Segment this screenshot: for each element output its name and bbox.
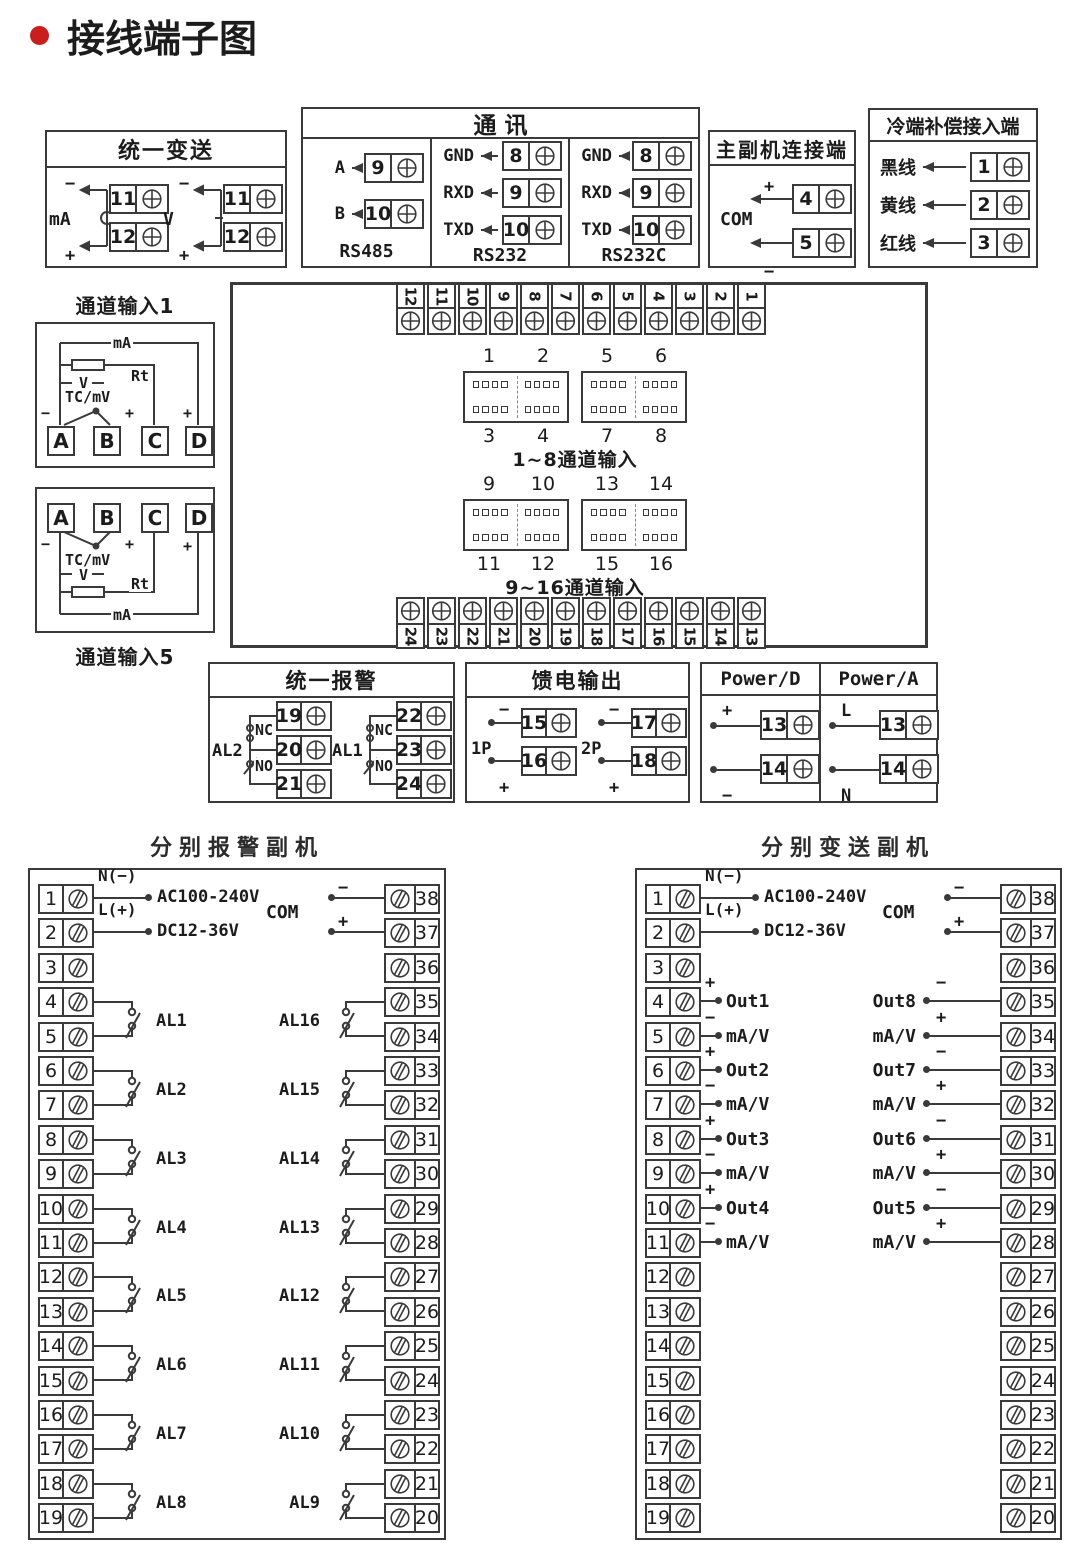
terminal: 13 (760, 710, 820, 740)
strip-number: 15 (675, 623, 704, 649)
channel-input-1-label: 通道输入1 (35, 290, 215, 319)
left-terminal-1: 1 (645, 884, 701, 914)
signal-label: GND (576, 146, 612, 166)
strip-number: 7 (551, 283, 580, 309)
strip-number-text: 21 (495, 627, 513, 646)
idc-connector (581, 499, 687, 551)
sign: − (722, 788, 732, 805)
terminal-number: 36 (414, 953, 440, 983)
pin-label: 12 (528, 553, 558, 573)
screw-icon (520, 307, 549, 335)
pin-square (591, 381, 597, 388)
comm-rows: A9B10 (303, 139, 430, 241)
pin-square (652, 534, 658, 541)
strip-cell: 13 (737, 597, 766, 649)
terminal-number: 19 (645, 1503, 671, 1533)
wire (758, 242, 792, 244)
wire (928, 1069, 1000, 1071)
pin-square (600, 381, 606, 388)
screw-slash-icon (1004, 1094, 1028, 1116)
screw-icon (1000, 1090, 1030, 1120)
power-line-label: L(+) (705, 901, 744, 919)
arrowhead-icon (750, 238, 761, 248)
arrow-wire (923, 242, 966, 244)
terminal-column: 192021 (276, 701, 332, 799)
power-line-label: N(−) (98, 867, 137, 885)
screw-cross-icon (304, 773, 328, 795)
screw-icon (671, 918, 701, 948)
screw-icon (489, 597, 518, 625)
strip-cell: 9 (489, 283, 518, 335)
screw-cross-icon (461, 310, 484, 332)
terminal: 2 (970, 190, 1030, 220)
right-terminal-32: 32 (384, 1090, 440, 1120)
screw-cross-icon (662, 145, 688, 167)
screw-icon (582, 597, 611, 625)
screw-cross-icon (424, 705, 448, 727)
screw-icon (613, 307, 642, 335)
screw-cross-icon (424, 773, 448, 795)
screw-icon (64, 1262, 94, 1292)
strip-number-text: 2 (712, 291, 730, 300)
screw-slash-icon (673, 1129, 697, 1151)
strip-cell: 3 (675, 283, 704, 335)
strip-number-text: 13 (743, 627, 761, 646)
group-label: mA (49, 210, 71, 230)
right-terminal-26: 26 (1000, 1297, 1056, 1327)
wire (835, 769, 879, 771)
strip-number-text: 4 (650, 291, 668, 300)
relay-switch-art (94, 1262, 152, 1336)
v-label: V (77, 568, 90, 583)
arrow-wire (481, 229, 498, 231)
arrow-wire (619, 229, 628, 231)
terminal: 8 (632, 141, 692, 171)
screw-cross-icon (662, 182, 688, 204)
screw-icon (907, 754, 939, 784)
screw-cross-icon (139, 226, 165, 248)
power-column-title: Power/A (821, 664, 936, 696)
sign: N (841, 788, 851, 805)
terminal-number: 20 (414, 1503, 440, 1533)
comm-row: TXD10 (576, 215, 692, 245)
pin-square (619, 534, 625, 541)
terminal-number: 19 (38, 1503, 64, 1533)
right-terminal-33: 33 (1000, 1056, 1056, 1086)
cold-junction-title: 冷端补偿接入端 (870, 110, 1036, 142)
screw-cross-icon (709, 600, 732, 622)
terminal-number: 22 (1030, 1434, 1056, 1464)
screw-icon (1000, 1434, 1030, 1464)
sign: − (705, 1147, 715, 1164)
relay-switch-art (326, 1125, 384, 1199)
signal-label: A (309, 158, 345, 178)
terminal-number: 37 (1030, 918, 1056, 948)
pin-square (671, 406, 677, 413)
right-terminal-37: 37 (384, 918, 440, 948)
strip-cell: 5 (613, 283, 642, 335)
screw-slash-icon (388, 1404, 412, 1426)
screw-icon (675, 307, 704, 335)
wiring-terminal-diagram-page: 接线端子图 统一变送 −+mA1112−+V1112 通 讯 A9B10RS48… (0, 0, 1080, 1553)
strip-cell: 17 (613, 597, 642, 649)
screw-icon (520, 597, 549, 625)
pin-square (591, 509, 597, 516)
output-label: mA/V (726, 1027, 769, 1047)
screw-icon (458, 597, 487, 625)
terminal: 19 (276, 701, 332, 731)
screw-cross-icon (1000, 156, 1026, 178)
pin-label: 1 (474, 345, 504, 365)
relay-label: AL5 (156, 1288, 187, 1305)
terminal-number: 10 (632, 215, 660, 245)
junction-dot (715, 1066, 722, 1073)
pin-square (671, 534, 677, 541)
terminal-number: 7 (38, 1090, 64, 1120)
connector-divider (635, 504, 636, 546)
screw-icon (671, 987, 701, 1017)
pin-square (492, 534, 498, 541)
sign: + (609, 780, 619, 797)
screw-icon (384, 1125, 414, 1155)
junction-dot (752, 894, 759, 901)
screw-cross-icon (662, 219, 688, 241)
screw-icon (1000, 953, 1030, 983)
screw-icon (547, 708, 577, 738)
power-rating-text: AC100-240V (764, 888, 866, 907)
terminal-number: 29 (414, 1194, 440, 1224)
terminal-number: 16 (38, 1400, 64, 1430)
alarm-relay-AL2: AL2NCNO192021 (214, 701, 332, 799)
pin-square (525, 534, 531, 541)
strip-number-text: 18 (588, 627, 606, 646)
screw-icon (907, 710, 939, 740)
comm-caption: RS232C (570, 245, 698, 266)
left-terminal-7: 7 (38, 1090, 94, 1120)
right-terminal-36: 36 (384, 953, 440, 983)
comm-caption: RS485 (303, 241, 430, 266)
terminal-number: 22 (414, 1434, 440, 1464)
pin-label: 14 (646, 473, 676, 493)
screw-slash-icon (1004, 1026, 1028, 1048)
screw-slash-icon (388, 991, 412, 1013)
output-label: mA/V (850, 1027, 916, 1047)
terminal-number: 20 (1030, 1503, 1056, 1533)
left-terminal-3: 3 (38, 953, 94, 983)
terminal-number: 38 (414, 884, 440, 914)
junction-dot (829, 766, 836, 773)
terminal-number: 37 (414, 918, 440, 948)
screw-cross-icon (253, 226, 279, 248)
junction-dot (715, 997, 722, 1004)
screw-cross-icon (647, 600, 670, 622)
screw-icon (64, 1366, 94, 1396)
screw-slash-icon (673, 957, 697, 979)
comm-row: B10 (309, 199, 424, 229)
screw-icon (384, 1090, 414, 1120)
power-column-body: 13+14− (702, 696, 819, 801)
wire (716, 769, 760, 771)
terminal: 9 (502, 178, 562, 208)
screw-cross-icon (492, 310, 515, 332)
terminal-number: 8 (632, 141, 660, 171)
screw-icon (384, 1022, 414, 1052)
strip-number-text: 20 (526, 627, 544, 646)
strip-cell: 6 (582, 283, 611, 335)
relay-label: AL10 (260, 1426, 320, 1443)
screw-icon (64, 1400, 94, 1430)
output-label: mA/V (726, 1233, 769, 1253)
screw-cross-icon (822, 232, 848, 254)
output-label: Out2 (726, 1061, 769, 1081)
feed-group-1P: 1P15−16+ (473, 708, 577, 792)
sign: + (722, 703, 732, 720)
right-terminal-22: 22 (384, 1434, 440, 1464)
master-slave-link-title: 主副机连接端 (710, 132, 854, 166)
no-label: NO (254, 758, 274, 775)
pin-square (600, 509, 606, 516)
terminal-number: 36 (1030, 953, 1056, 983)
terminal-number: 8 (502, 141, 530, 171)
master-slave-link-content: COM4+5− (710, 166, 854, 266)
screw-icon (998, 228, 1030, 258)
pin-square (643, 406, 649, 413)
terminal-number: 29 (1030, 1194, 1056, 1224)
right-terminal-22: 22 (1000, 1434, 1056, 1464)
screw-slash-icon (388, 1473, 412, 1495)
relay-switch-art (94, 1469, 152, 1543)
right-terminal-26: 26 (384, 1297, 440, 1327)
left-terminal-18: 18 (38, 1469, 94, 1499)
screw-slash-icon (66, 1370, 90, 1392)
junction-dot (715, 1135, 722, 1142)
screw-cross-icon (554, 600, 577, 622)
pin-row (591, 381, 677, 388)
minus-sign: − (39, 537, 52, 552)
pin-square (492, 509, 498, 516)
screw-slash-icon (388, 1094, 412, 1116)
screw-cross-icon (430, 600, 453, 622)
transmit-group-V: −+V1112 (171, 182, 283, 262)
output-label: Out3 (726, 1130, 769, 1150)
left-terminal-8: 8 (645, 1125, 701, 1155)
sign: + (338, 914, 348, 931)
strip-cell: 7 (551, 283, 580, 335)
plus-sign: + (123, 406, 136, 421)
left-terminal-15: 15 (645, 1366, 701, 1396)
ma-label: mA (111, 336, 133, 351)
pin-square (652, 509, 658, 516)
screw-icon (64, 1125, 94, 1155)
terminal-number: 17 (631, 708, 657, 738)
feed-group-2P: 2P17−18+ (583, 708, 687, 792)
output-label: Out1 (726, 992, 769, 1012)
feed-output-title: 馈电输出 (467, 664, 688, 698)
signal-label: RXD (438, 183, 474, 203)
terminal-number: 1 (970, 152, 998, 182)
right-terminal-29: 29 (1000, 1194, 1056, 1224)
right-terminal-21: 21 (384, 1469, 440, 1499)
bullet-icon (30, 26, 49, 45)
right-terminal-33: 33 (384, 1056, 440, 1086)
screw-slash-icon (673, 1026, 697, 1048)
left-terminal-19: 19 (645, 1503, 701, 1533)
relay-switch-art (326, 1331, 384, 1405)
screw-slash-icon (1004, 1129, 1028, 1151)
junction-dot (715, 1204, 722, 1211)
no-label: NO (374, 758, 394, 775)
strip-number: 20 (520, 623, 549, 649)
screw-icon (1000, 1159, 1030, 1189)
terminal: 13 (879, 710, 939, 740)
screw-slash-icon (673, 1060, 697, 1082)
screw-icon (384, 1056, 414, 1086)
right-terminal-27: 27 (384, 1262, 440, 1292)
signal-label: B (309, 204, 345, 224)
sign: + (705, 1044, 715, 1061)
screw-cross-icon (399, 600, 422, 622)
plus-sign: + (123, 537, 136, 552)
screw-slash-icon (1004, 1232, 1028, 1254)
terminal-number: 9 (632, 178, 660, 208)
screw-slash-icon (66, 1129, 90, 1151)
junction-dot (829, 722, 836, 729)
left-terminal-11: 11 (38, 1228, 94, 1258)
screw-icon (1000, 1056, 1030, 1086)
screw-slash-icon (388, 957, 412, 979)
power-rating-text: DC12-36V (764, 922, 846, 941)
wire (928, 1241, 1000, 1243)
relay-switch-art (326, 1056, 384, 1130)
screw-icon (1000, 1400, 1030, 1430)
right-terminal-30: 30 (384, 1159, 440, 1189)
sign: L (841, 703, 851, 720)
right-terminal-31: 31 (384, 1125, 440, 1155)
screw-slash-icon (388, 1060, 412, 1082)
relay-label: AL11 (260, 1357, 320, 1374)
wire (94, 931, 148, 933)
strip-number-text: 16 (650, 627, 668, 646)
strip-number-text: 5 (619, 291, 637, 300)
screw-slash-icon (673, 1198, 697, 1220)
comm-rows: GND8RXD9TXD10 (432, 139, 568, 245)
pin-square (543, 406, 549, 413)
sign: − (954, 880, 964, 897)
wire (928, 1103, 1000, 1105)
unified-alarm-title: 统一报警 (210, 664, 453, 698)
strip-number: 22 (458, 623, 487, 649)
pin-square (525, 406, 531, 413)
screw-icon (422, 701, 452, 731)
relay-label: AL2 (156, 1082, 187, 1099)
terminal-number: 3 (970, 228, 998, 258)
terminal-number: 32 (414, 1090, 440, 1120)
terminal-number: 11 (645, 1228, 671, 1258)
wire (928, 1000, 1000, 1002)
strip-number: 21 (489, 623, 518, 649)
pin-square (643, 509, 649, 516)
screw-icon (530, 178, 562, 208)
pin-square (671, 509, 677, 516)
screw-slash-icon (66, 1404, 90, 1426)
screw-slash-icon (66, 1266, 90, 1288)
terminal-number: 33 (414, 1056, 440, 1086)
screw-icon (671, 1366, 701, 1396)
right-terminal-20: 20 (1000, 1503, 1056, 1533)
right-terminal-30: 30 (1000, 1159, 1056, 1189)
pin-row (591, 509, 677, 516)
output-label: Out6 (850, 1130, 916, 1150)
screw-icon (671, 1194, 701, 1224)
cold-junction-box: 冷端补偿接入端 黑线1黄线2红线3 (868, 108, 1038, 268)
comm-row: RXD9 (576, 178, 692, 208)
screw-slash-icon (1004, 1335, 1028, 1357)
connector-divider (635, 376, 636, 418)
sign: − (936, 1182, 946, 1199)
screw-cross-icon (461, 600, 484, 622)
page-header: 接线端子图 (30, 8, 257, 63)
pin-square (661, 534, 667, 541)
terminal-number: 24 (1030, 1366, 1056, 1396)
sign: − (936, 1113, 946, 1130)
sign: + (705, 1182, 715, 1199)
terminal: 20 (276, 735, 332, 765)
screw-cross-icon (709, 310, 732, 332)
terminal-number: 1 (645, 884, 671, 914)
strip-number: 11 (427, 283, 456, 309)
screw-cross-icon (532, 182, 558, 204)
strip-cell: 18 (582, 597, 611, 649)
signal-label: GND (438, 146, 474, 166)
wire (493, 722, 521, 724)
relay-switch-art (94, 1331, 152, 1405)
ma-label: mA (111, 608, 133, 623)
terminal-number: 21 (1030, 1469, 1056, 1499)
screw-icon (458, 307, 487, 335)
screw-icon (1000, 1022, 1030, 1052)
right-terminal-31: 31 (1000, 1125, 1056, 1155)
arrow-wire (923, 166, 966, 168)
relay-switch-art (94, 987, 152, 1061)
sign: + (499, 780, 509, 797)
terminal-number: 17 (645, 1434, 671, 1464)
terminal: 9 (364, 153, 424, 183)
screw-icon (64, 1228, 94, 1258)
screw-icon (1000, 1297, 1030, 1327)
rt-label: Rt (129, 577, 151, 592)
relay-label: AL12 (260, 1288, 320, 1305)
screw-icon (644, 307, 673, 335)
relay-label: AL1 (332, 743, 363, 760)
terminal-number: 28 (414, 1228, 440, 1258)
left-terminal-15: 15 (38, 1366, 94, 1396)
screw-icon (530, 141, 562, 171)
left-terminal-14: 14 (645, 1331, 701, 1361)
right-terminal-38: 38 (384, 884, 440, 914)
screw-cross-icon (430, 310, 453, 332)
screw-icon (657, 708, 687, 738)
terminal-number: 16 (645, 1400, 671, 1430)
cold-junction-rows: 黑线1黄线2红线3 (870, 142, 1036, 259)
screw-cross-icon (659, 712, 683, 734)
junction-dot (710, 722, 717, 729)
terminal: 10 (502, 215, 562, 245)
relay-label: AL16 (260, 1013, 320, 1030)
terminal: 11 (109, 184, 171, 214)
strip-number: 14 (706, 623, 735, 649)
relay-label: AL7 (156, 1426, 187, 1443)
pin-square (501, 509, 507, 516)
